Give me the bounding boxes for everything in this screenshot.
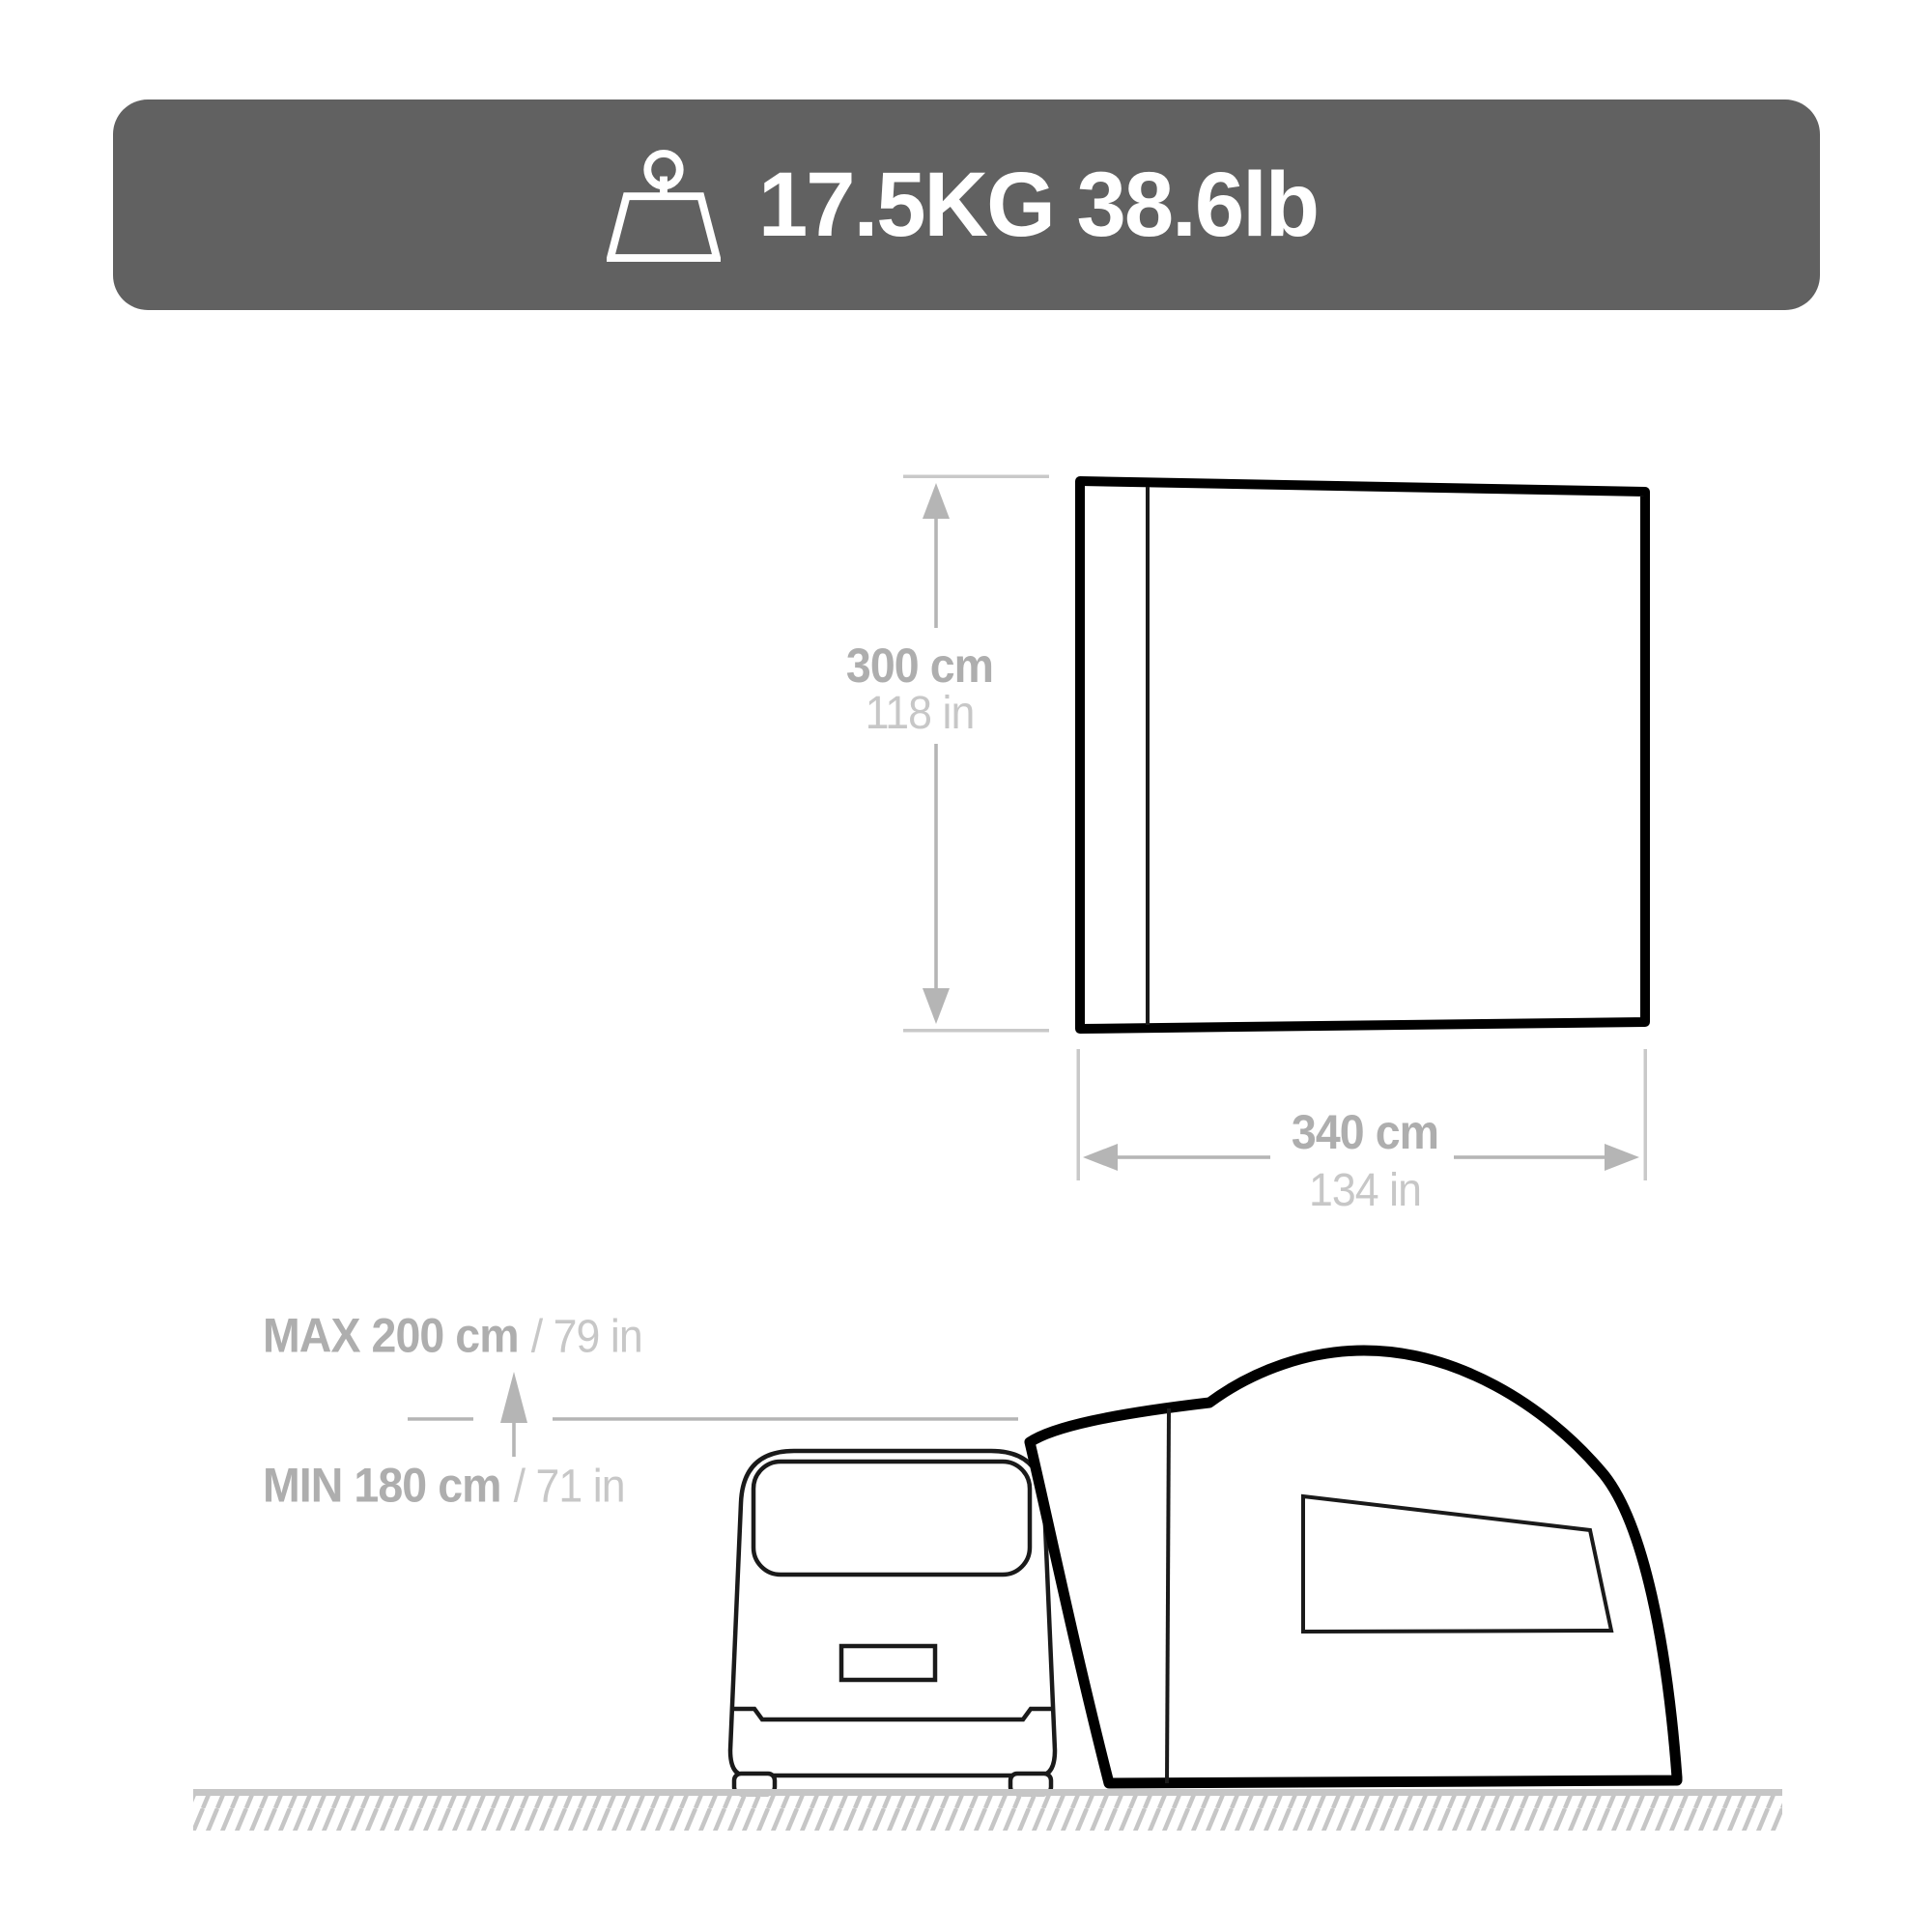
ground-hatching bbox=[193, 1796, 1782, 1831]
arrow-down-icon bbox=[923, 988, 950, 1024]
arrow-right-icon bbox=[1605, 1144, 1639, 1171]
tent-outline bbox=[1030, 1350, 1677, 1783]
extension-line-bottom bbox=[903, 1029, 1049, 1033]
max-height-in: / 79 in bbox=[531, 1315, 642, 1361]
width-in-label: 134 in bbox=[1309, 1168, 1421, 1214]
extension-line-top bbox=[903, 475, 1049, 479]
van-license-plate bbox=[841, 1646, 935, 1680]
camper-van bbox=[730, 1451, 1055, 1794]
min-height-label: MIN 180 cm / 71 in bbox=[263, 1462, 625, 1511]
van-rear-window bbox=[753, 1462, 1030, 1575]
ground-line bbox=[193, 1789, 1782, 1796]
product-spec-diagram: 17.5KG 38.6lb bbox=[0, 0, 1932, 1932]
depth-in-label: 118 in bbox=[866, 691, 975, 737]
diagram-artwork bbox=[0, 0, 1932, 1932]
arrow-up-icon bbox=[923, 483, 950, 519]
dimension-attachment-height bbox=[408, 1372, 1018, 1457]
tent-top-view bbox=[1080, 481, 1645, 1029]
extension-line-left bbox=[1077, 1049, 1081, 1180]
dimension-depth-300cm bbox=[903, 475, 1049, 1033]
max-height-label: MAX 200 cm / 79 in bbox=[263, 1312, 642, 1361]
tent-sleeve-divider-line bbox=[1167, 1408, 1169, 1783]
max-height-cm: MAX 200 cm bbox=[263, 1312, 519, 1360]
ground bbox=[193, 1789, 1782, 1831]
tent-side-view bbox=[1030, 1350, 1677, 1783]
depth-cm-label: 300 cm bbox=[846, 641, 993, 690]
extension-line-right bbox=[1644, 1049, 1648, 1180]
tent-window bbox=[1303, 1496, 1611, 1632]
min-height-cm: MIN 180 cm bbox=[263, 1462, 501, 1510]
width-cm-label: 340 cm bbox=[1292, 1108, 1438, 1156]
arrow-left-icon bbox=[1083, 1144, 1118, 1171]
min-height-in: / 71 in bbox=[514, 1464, 625, 1511]
arrow-up-icon bbox=[500, 1372, 527, 1423]
